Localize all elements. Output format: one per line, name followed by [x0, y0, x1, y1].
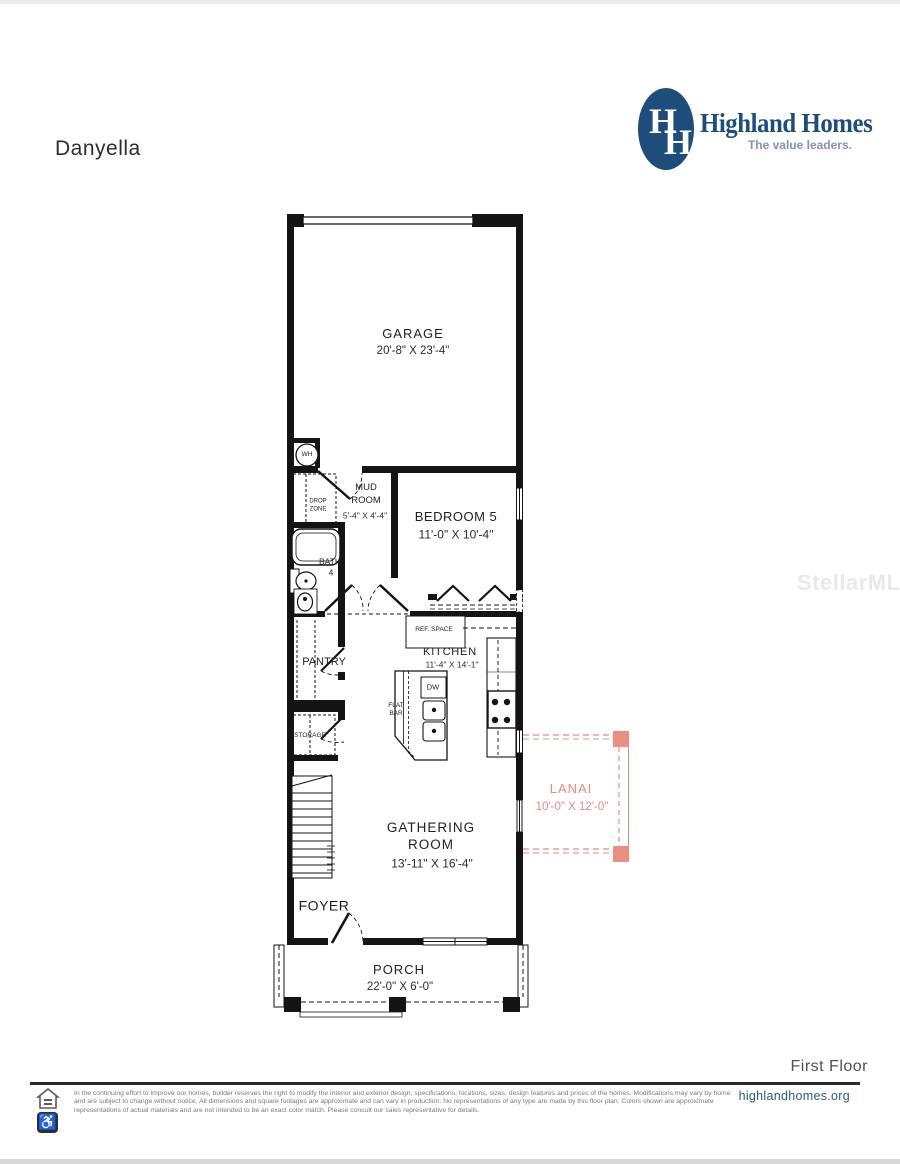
floor-plan-drawing [0, 0, 900, 1164]
garage-label: GARAGE [382, 326, 444, 342]
wheelchair-accessible-icon: ♿ [37, 1112, 58, 1133]
bath-number: 4 [329, 568, 334, 579]
floor-label: First Floor [0, 1058, 868, 1076]
pantry-label: PANTRY [302, 656, 346, 670]
flat-bar-label: FLAT BAR [383, 702, 409, 718]
equal-housing-icon [36, 1088, 60, 1110]
lanai-dims: 10'-0" X 12'-0" [536, 800, 609, 814]
mud-room-dims: 5'-4" X 4'-4" [343, 511, 387, 522]
bedroom5-label: BEDROOM 5 [415, 509, 498, 525]
bath-label: BATH [319, 557, 341, 568]
foyer-label: FOYER [299, 897, 350, 915]
gathering-room-dims: 13'-11" X 16'-4" [391, 857, 473, 872]
mud-room-label: MUD ROOM [340, 482, 392, 508]
kitchen-label: KITCHEN [423, 646, 477, 660]
storage-label: STORAGE [294, 732, 326, 740]
lanai-label: LANAI [550, 781, 593, 797]
footer-divider [30, 1082, 860, 1085]
kitchen-fixtures [395, 616, 516, 760]
porch-label: PORCH [373, 962, 425, 978]
porch-dims: 22'-0" X 6'-0" [367, 980, 433, 994]
gathering-room-label: GATHERING ROOM [366, 820, 496, 854]
bedroom5-dims: 11'-0" X 10'-4" [419, 528, 494, 543]
drop-zone-label: DROP ZONE [303, 499, 333, 514]
water-heater-label: WH [302, 451, 313, 459]
floor-plan-flyer: Danyella H H Highland Homes The value le… [0, 0, 900, 1164]
disclaimer-text: In the continuing effort to improve our … [74, 1090, 742, 1115]
kitchen-dims: 11'-4" X 14'-1" [425, 660, 478, 671]
garage-dims: 20'-8" X 23'-4" [377, 344, 450, 358]
ref-space-label: REF. SPACE [415, 626, 453, 634]
dishwasher-label: DW [427, 682, 440, 691]
staircase [292, 775, 335, 878]
